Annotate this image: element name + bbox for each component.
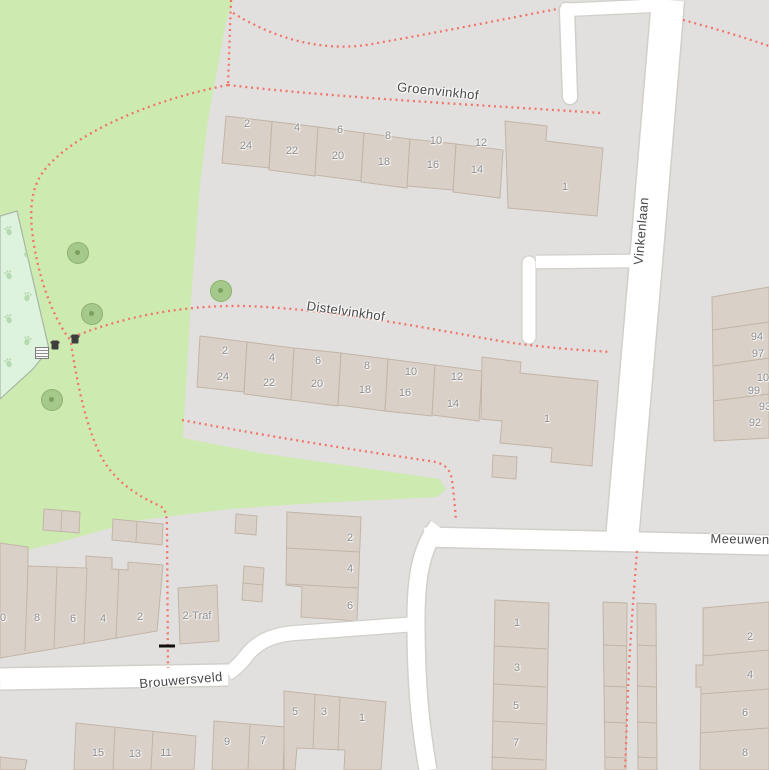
house-number: 4: [347, 563, 353, 575]
house-number: 14: [471, 164, 483, 176]
house-number: 2: [244, 118, 250, 130]
house-number: 16: [427, 159, 439, 171]
house-number: 18: [359, 384, 371, 396]
street-label-brouwersveld: Brouwersveld: [139, 669, 224, 691]
house-number: 7: [513, 737, 519, 749]
house-number: 15: [92, 747, 104, 759]
gate-icon: [159, 645, 175, 648]
house-number: 20: [311, 378, 323, 390]
house-number: 12: [475, 137, 487, 149]
tree-icon: [41, 389, 63, 411]
house-number: 1: [544, 413, 550, 425]
house-number: 97: [752, 348, 764, 360]
tree-icon: [67, 242, 89, 264]
street-label-distelvinkhof: Distelvinkhof: [306, 298, 386, 324]
house-number: 13: [129, 748, 141, 760]
house-number: 8: [385, 130, 391, 142]
house-number: 16: [399, 387, 411, 399]
house-number: 2: [222, 345, 228, 357]
house-number: 10: [430, 135, 442, 147]
house-number: 92: [749, 417, 761, 429]
house-number: 6: [337, 124, 343, 136]
house-number: 12: [451, 371, 463, 383]
house-number: 22: [263, 377, 275, 389]
house-number: 2: [747, 631, 753, 643]
house-number: 6: [347, 600, 353, 612]
house-number: 2: [347, 532, 353, 544]
house-number: 5: [292, 706, 298, 718]
house-number: 14: [447, 398, 459, 410]
house-number: 24: [240, 140, 252, 152]
house-number: 4: [294, 122, 300, 134]
poi-label: 2-Traf: [183, 610, 212, 622]
house-number: 99: [748, 385, 760, 397]
house-number: 93: [759, 401, 769, 413]
house-number: 1: [562, 181, 568, 193]
house-number: 5: [513, 700, 519, 712]
house-number: 9: [224, 736, 230, 748]
house-number: 10: [405, 366, 417, 378]
house-number: 8: [34, 612, 40, 624]
street-label-meeuwen: Meeuwen: [710, 531, 769, 547]
waste-bin-icon: [72, 335, 79, 344]
house-number: 1: [359, 712, 365, 724]
house-number: 8: [364, 360, 370, 372]
house-number: 3: [321, 706, 327, 718]
house-number: 3: [514, 662, 520, 674]
map-canvas[interactable]: GroenvinkhofDistelvinkhofVinkenlaanMeeuw…: [0, 0, 769, 770]
house-number: 11: [160, 747, 171, 759]
feature-layer: GroenvinkhofDistelvinkhofVinkenlaanMeeuw…: [0, 0, 769, 770]
house-number: 2: [137, 611, 143, 623]
waste-bin-icon: [52, 341, 59, 350]
street-label-vinkenlaan: Vinkenlaan: [631, 196, 652, 265]
street-label-groenvinkhof: Groenvinkhof: [396, 79, 479, 103]
house-number: 22: [286, 145, 298, 157]
house-number: 8: [742, 747, 748, 759]
house-number: 6: [315, 355, 321, 367]
house-number: 7: [260, 735, 266, 747]
house-number: 18: [378, 156, 390, 168]
picnic-table-icon: [35, 347, 49, 359]
house-number: 6: [742, 707, 748, 719]
house-number: 1: [514, 617, 520, 629]
house-number: 94: [751, 331, 763, 343]
house-number: 10: [757, 372, 769, 384]
house-number: 6: [70, 613, 76, 625]
house-number: 20: [332, 150, 344, 162]
tree-icon: [210, 280, 232, 302]
house-number: 0: [0, 612, 6, 624]
house-number: 4: [747, 669, 753, 681]
house-number: 4: [269, 352, 275, 364]
house-number: 4: [100, 613, 106, 625]
tree-icon: [81, 303, 103, 325]
house-number: 24: [217, 371, 229, 383]
